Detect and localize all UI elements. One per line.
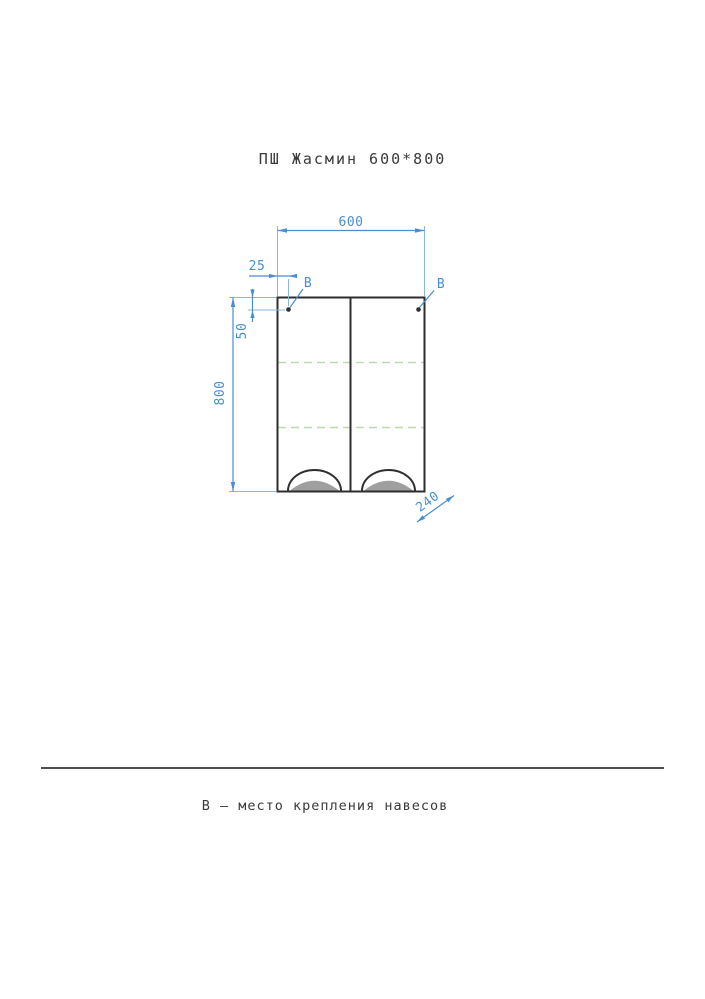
dim-depth-label: 240 bbox=[413, 489, 442, 516]
arrow-width-left bbox=[278, 228, 288, 233]
left-marker-label: В bbox=[304, 276, 312, 291]
dim-height-label: 800 bbox=[213, 381, 228, 406]
left-handle-fill bbox=[290, 481, 339, 491]
dimension-labels: 600 25 50 800 240 В В bbox=[213, 215, 445, 516]
right-marker-leader bbox=[420, 291, 435, 308]
dim-width-label: 600 bbox=[339, 215, 364, 230]
left-mount-dot bbox=[286, 307, 291, 312]
right-marker-label: В bbox=[437, 277, 445, 292]
dim-offset-y-label: 50 bbox=[235, 323, 250, 340]
legend-caption: В – место крепления навесов bbox=[0, 798, 650, 814]
arrow-offset-y-bottom bbox=[250, 310, 254, 318]
page: ПШ Жасмин 600*800 bbox=[0, 0, 705, 999]
arrow-depth-lower bbox=[417, 515, 425, 522]
cabinet-body bbox=[278, 298, 425, 492]
arrow-offset-x-right bbox=[289, 274, 298, 278]
right-mount-dot bbox=[416, 307, 421, 312]
arrow-offset-x-left bbox=[269, 274, 278, 278]
dim-offset-x-label: 25 bbox=[249, 259, 266, 274]
arrow-depth-upper bbox=[446, 496, 454, 503]
footer-divider-line bbox=[41, 767, 664, 769]
arrow-height-bottom bbox=[231, 482, 235, 492]
right-handle-fill bbox=[364, 481, 413, 491]
arrow-offset-y-top bbox=[250, 290, 254, 298]
arrow-height-top bbox=[231, 298, 235, 308]
dimension-lines bbox=[233, 231, 454, 523]
cabinet-drawing: 600 25 50 800 240 В В bbox=[0, 0, 705, 999]
mount-dots bbox=[286, 307, 421, 312]
arrow-width-right bbox=[415, 228, 425, 233]
